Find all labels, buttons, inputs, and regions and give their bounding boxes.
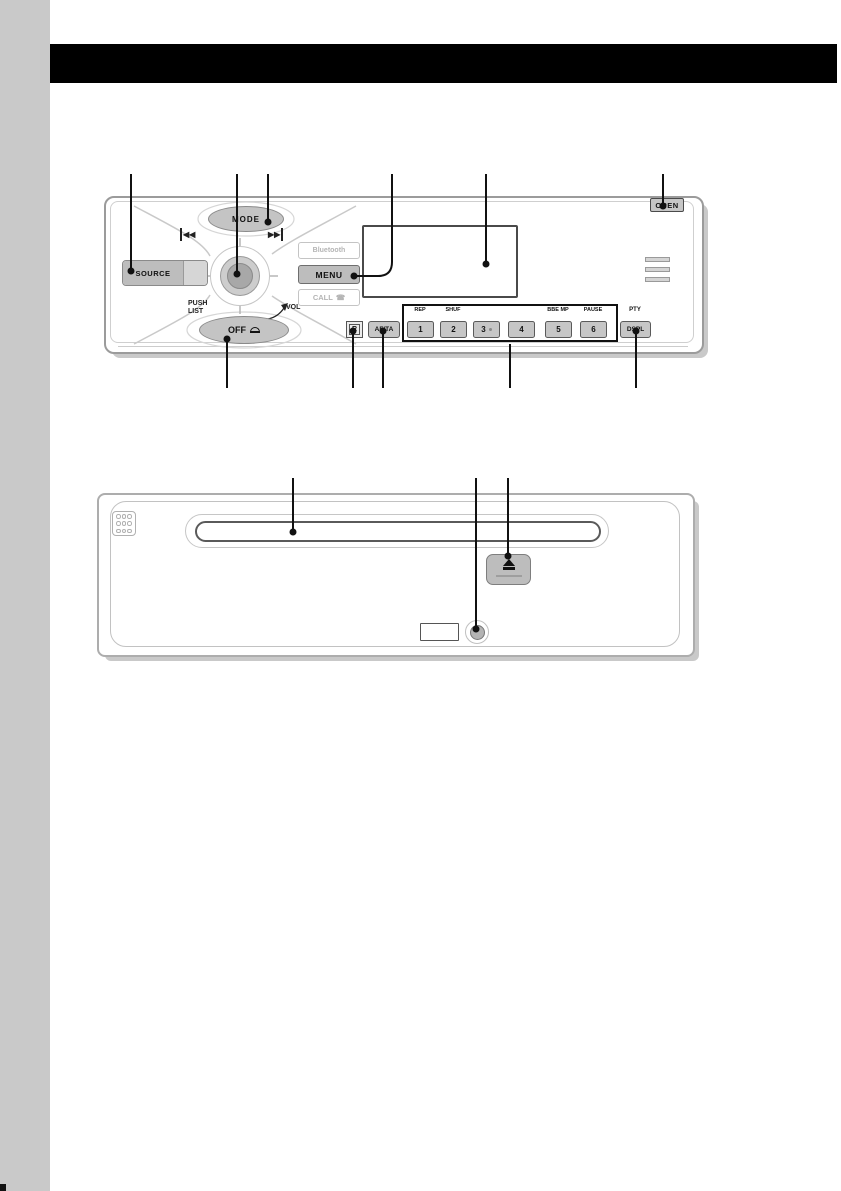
- dot-indicator: [489, 328, 492, 331]
- manual-page: OPEN MODE ◀◀ ▶▶ SOURCE PUSH LIST VOL OFF…: [0, 0, 841, 1191]
- preset-1-label: REP: [414, 307, 425, 313]
- display-screen: [362, 225, 518, 298]
- phone-icon: ☎: [336, 293, 345, 302]
- preset-button-2[interactable]: 2: [440, 321, 467, 338]
- open-button[interactable]: OPEN: [650, 198, 684, 212]
- off-label: OFF: [228, 325, 246, 335]
- preset-button-5[interactable]: 5: [545, 321, 572, 338]
- slot-unit: [97, 493, 695, 657]
- preset-button-6[interactable]: 6: [580, 321, 607, 338]
- preset-button-1[interactable]: 1: [407, 321, 434, 338]
- menu-button[interactable]: MENU: [298, 265, 360, 284]
- dspl-button[interactable]: DSPL: [620, 321, 651, 338]
- remote-sensor-label: R: [349, 324, 360, 335]
- preset-6-label: PAUSE: [584, 307, 603, 313]
- preset-button-4[interactable]: 4: [508, 321, 535, 338]
- faceplate-open-icon: [250, 327, 260, 333]
- reset-button-ring: [465, 620, 489, 644]
- seek-forward-icon[interactable]: ▶▶: [268, 228, 283, 241]
- speaker-grid-icon: [112, 511, 136, 536]
- preset-5-label: BBE MP: [547, 307, 568, 313]
- source-button-label: SOURCE: [123, 261, 183, 285]
- preset-3-number: 3: [481, 325, 485, 334]
- faceplate-chin-line: [118, 346, 688, 347]
- eject-icon-bar: [503, 567, 515, 570]
- reset-button[interactable]: [470, 625, 485, 640]
- preset-2-label: SHUF: [446, 307, 461, 313]
- call-button[interactable]: CALL ☎: [298, 289, 360, 306]
- eject-button-crease: [496, 575, 522, 577]
- list-label: LIST: [188, 308, 218, 316]
- eject-icon: [503, 559, 515, 566]
- seek-backward-icon[interactable]: ◀◀: [180, 228, 195, 241]
- volume-knob-center[interactable]: [227, 263, 253, 289]
- off-button[interactable]: OFF: [199, 316, 289, 344]
- source-button-extension: [183, 261, 207, 285]
- pty-label: PTY: [629, 307, 641, 313]
- speaker-vent-bar: [645, 277, 670, 282]
- section-header-bar: [50, 44, 837, 83]
- af-ta-button[interactable]: AF/TA: [368, 321, 400, 338]
- call-label: CALL: [313, 293, 333, 302]
- remote-sensor: R: [346, 321, 363, 338]
- eject-button[interactable]: [486, 554, 531, 585]
- source-button[interactable]: SOURCE: [122, 260, 208, 286]
- disc-slot[interactable]: [195, 521, 601, 542]
- bluetooth-button[interactable]: Bluetooth: [298, 242, 360, 259]
- speaker-vent-bar: [645, 267, 670, 272]
- speaker-vent-bar: [645, 257, 670, 262]
- preset-button-3[interactable]: 3: [473, 321, 500, 338]
- page-margin-strip: [0, 0, 50, 1191]
- push-list-label: PUSH LIST: [188, 300, 218, 316]
- label-window: [420, 623, 459, 641]
- page-corner-mark: [0, 1184, 6, 1191]
- head-unit-faceplate: OPEN MODE ◀◀ ▶▶ SOURCE PUSH LIST VOL OFF…: [104, 196, 704, 354]
- push-label: PUSH: [188, 300, 218, 308]
